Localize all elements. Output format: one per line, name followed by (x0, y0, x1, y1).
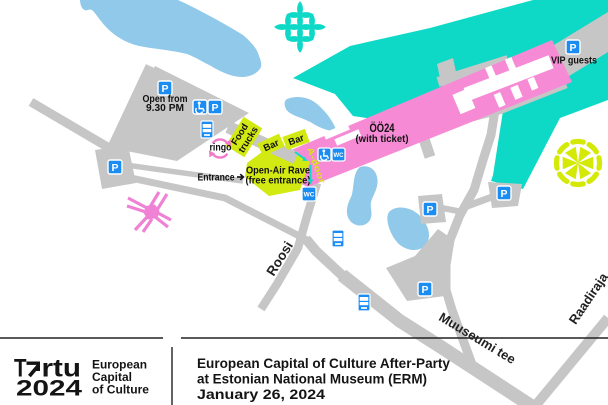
svg-text:European Capital of Culture Af: European Capital of Culture After-Party (197, 355, 450, 371)
svg-text:VIP guests: VIP guests (551, 56, 597, 67)
svg-text:of Culture: of Culture (92, 383, 149, 397)
svg-text:P: P (421, 284, 428, 296)
svg-text:ringo: ringo (210, 143, 232, 154)
svg-text:P: P (500, 188, 507, 200)
svg-text:WC: WC (334, 153, 345, 159)
svg-text:Entrance: Entrance (198, 173, 235, 184)
svg-text:P: P (111, 162, 118, 174)
svg-text:(free entrance): (free entrance) (246, 176, 311, 187)
svg-text:January 26, 2024: January 26, 2024 (197, 386, 325, 402)
svg-text:WC: WC (304, 192, 315, 199)
svg-text:P: P (211, 102, 218, 114)
svg-text:P: P (569, 42, 576, 54)
svg-text:2024: 2024 (16, 376, 83, 401)
svg-text:(with ticket): (with ticket) (356, 133, 409, 145)
svg-text:9.30 PM: 9.30 PM (146, 103, 184, 114)
svg-text:at Estonian National Museum (E: at Estonian National Museum (ERM) (197, 371, 427, 387)
svg-text:P: P (426, 204, 433, 216)
